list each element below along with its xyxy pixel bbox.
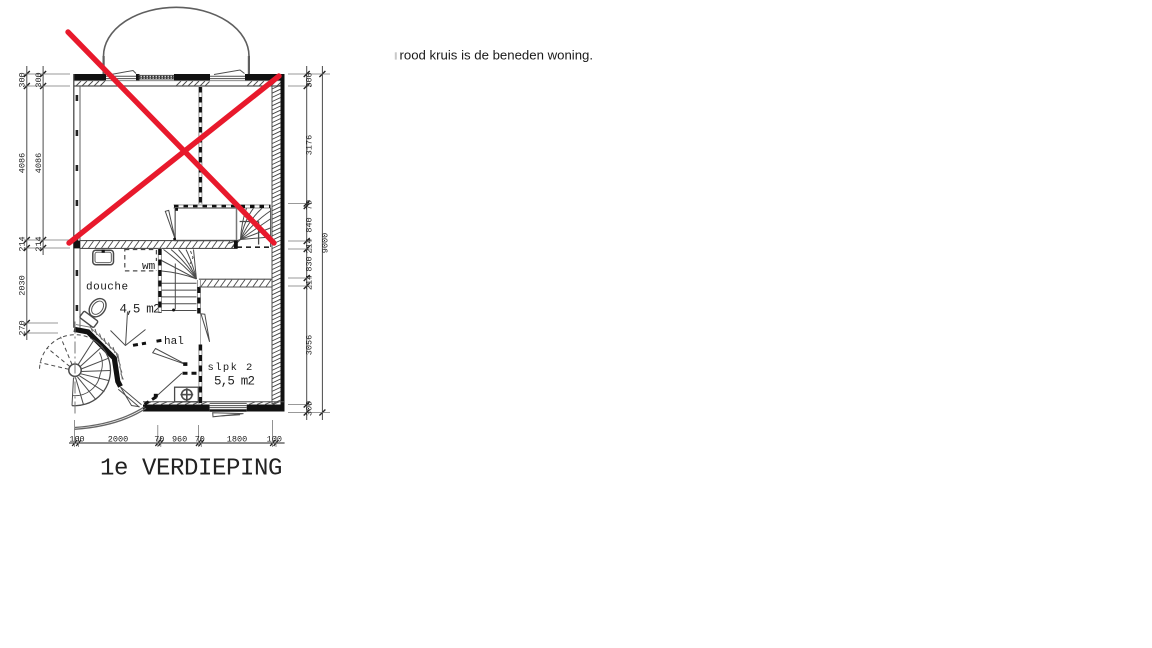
svg-text:3176: 3176 [305,135,315,155]
svg-text:960: 960 [172,435,187,445]
svg-text:9000: 9000 [320,233,330,253]
svg-text:214: 214 [305,275,315,290]
svg-text:100: 100 [69,435,84,445]
svg-text:300: 300 [305,72,315,87]
svg-text:300: 300 [18,72,28,87]
svg-text:2000: 2000 [108,435,128,445]
svg-text:214: 214 [305,238,315,253]
svg-text:840: 840 [305,217,315,232]
svg-text:100: 100 [267,435,282,445]
svg-text:5,5 m2: 5,5 m2 [214,374,255,388]
svg-text:70: 70 [195,435,205,445]
svg-text:4086: 4086 [34,153,44,173]
svg-text:2030: 2030 [18,275,28,295]
svg-text:wm: wm [142,261,156,273]
svg-text:hal: hal [164,336,184,348]
svg-text:70: 70 [305,200,315,210]
svg-text:270: 270 [18,320,28,335]
svg-text:1800: 1800 [227,435,247,445]
svg-text:slpk 2: slpk 2 [208,362,254,374]
svg-text:70: 70 [154,435,164,445]
svg-text:300: 300 [305,401,315,416]
svg-text:3056: 3056 [305,335,315,355]
svg-text:4086: 4086 [18,153,28,173]
svg-text:1e VERDIEPING: 1e VERDIEPING [100,456,282,483]
svg-text:214: 214 [18,236,28,251]
svg-text:214: 214 [34,236,44,251]
svg-text:300: 300 [34,72,44,87]
svg-text:4,5 m2: 4,5 m2 [120,303,161,317]
svg-text:rood kruis is de beneden wonin: rood kruis is de beneden woning. [400,48,594,63]
svg-text:830: 830 [305,256,315,271]
svg-text:douche: douche [86,282,129,294]
